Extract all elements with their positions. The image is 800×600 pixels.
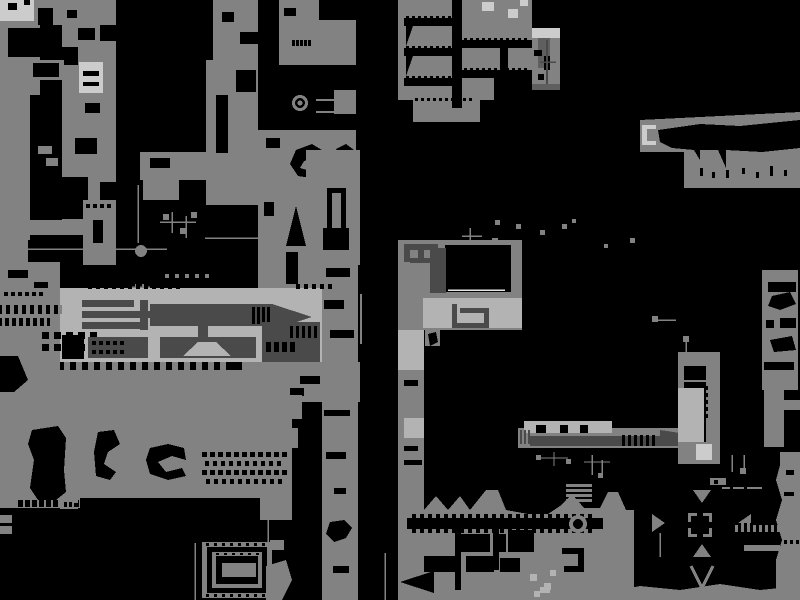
map-tick [18,292,22,296]
map-shape [764,362,794,370]
map-tick [106,341,110,345]
map-shape [286,252,298,284]
map-shape [445,245,511,292]
map-tick [304,284,308,289]
map-shape [140,152,206,180]
map-shape [326,268,350,277]
map-shape [333,566,349,573]
map-tick [476,68,479,71]
map-shape [564,566,584,572]
map-tick [16,406,24,410]
map-tick [104,284,108,289]
map-shape [93,220,103,243]
map-shape [460,534,490,552]
map-tick [464,68,467,71]
map-tick [237,461,241,466]
map-tick [26,305,30,314]
map-shape [404,418,424,438]
map-tick [420,514,424,518]
map-tick [206,543,209,546]
map-shape [163,214,169,220]
map-tick [245,461,249,466]
map-shape [540,587,550,593]
map-tick [433,98,436,101]
map-tick [25,292,29,296]
map-shape [82,300,134,307]
map-tick [113,341,117,345]
map-tick [762,523,765,533]
map-tick [564,529,568,533]
map-shape [82,322,140,329]
map-tick [436,529,440,533]
map-tick [218,470,223,475]
map-tick [768,523,771,533]
map-tick [16,399,24,403]
map-tick [484,514,488,518]
map-tick [258,470,263,475]
map-shape [688,513,691,522]
map-tick [240,553,243,555]
map-shape [580,425,588,433]
map-shape [703,534,712,537]
map-tick [261,461,265,466]
map-tick [168,284,172,289]
map-shape [410,258,438,263]
map-shape [683,336,689,342]
map-tick [39,500,44,507]
map-tick [452,514,456,518]
map-tick [100,204,104,208]
map-tick [106,350,110,354]
map-shape [323,228,349,250]
map-shape [780,400,800,410]
map-tick [50,305,54,314]
map-shape [784,170,787,176]
map-tick [282,452,287,457]
map-tick [451,98,454,101]
map-shape [404,380,418,386]
map-shape [270,540,284,550]
map-shape [482,2,494,11]
map-tick [246,594,249,597]
map-shape [562,224,567,229]
map-shape [566,489,592,492]
map-tick [266,342,271,352]
map-tick [202,470,207,475]
map-shape [324,300,344,309]
map-shape [0,515,12,523]
map-shape [700,168,703,176]
map-tick [246,479,250,484]
map-shape [756,172,759,178]
map-tick [460,514,464,518]
map-tick [500,514,504,518]
map-tick [482,38,485,41]
map-tick [92,341,96,345]
map-shape [784,492,794,496]
map-shape [714,480,718,484]
map-shape [222,12,234,22]
map-tick [406,76,409,79]
map-shape [562,548,584,554]
map-tick [518,68,521,71]
map-tick [76,362,82,370]
map-tick [470,38,473,41]
map-tick [704,386,708,390]
map-shape [334,90,356,114]
map-tick [34,305,38,314]
map-tick [445,98,448,101]
map-tick [226,470,231,475]
map-tick [304,40,307,46]
map-tick [230,479,234,484]
map-tick [42,344,49,351]
map-tick [784,540,787,544]
map-tick [210,470,215,475]
map-tick [54,344,61,351]
map-tick [282,342,287,352]
map-tick [214,543,217,546]
map-tick [257,307,260,324]
map-tick [120,284,124,289]
map-tick [436,46,439,49]
map-tick [266,452,271,457]
map-tick [30,318,33,326]
map-shape [520,0,528,6]
map-tick [406,46,409,49]
map-tick [704,393,708,397]
map-tick [468,514,472,518]
map-shape [652,316,658,322]
map-tick [214,594,217,597]
map-tick [500,68,503,71]
map-tick [290,326,293,338]
map-shape [88,337,148,358]
map-tick [520,430,522,444]
map-shape [30,220,62,235]
map-tick [468,529,472,533]
map-shape [642,141,656,145]
map-tick [100,362,106,370]
map-tick [476,38,479,41]
map-tick [418,76,421,79]
map-tick [308,326,311,338]
map-shape [202,542,272,547]
map-shape [404,48,452,56]
map-shape [550,570,556,576]
map-tick [524,68,527,71]
map-shape [240,32,258,44]
map-tick [252,307,255,324]
map-tick [750,523,753,533]
map-shape [327,188,332,228]
map-shape [742,168,745,174]
map-tick [277,461,281,466]
map-shape [634,490,774,588]
map-tick [196,362,202,370]
map-tick [210,452,215,457]
map-shape [8,28,40,57]
map-tick [172,362,178,370]
map-tick [628,435,631,446]
map-tick [152,284,156,289]
map-tick [9,318,12,326]
map-shape [202,542,207,598]
map-tick [512,38,515,41]
map-shape [536,425,546,433]
map-tick [796,540,799,544]
map-shape [493,520,499,570]
map-tick [208,362,214,370]
map-tick [202,452,207,457]
map-tick [300,40,303,46]
map-shape [688,534,697,537]
map-tick [518,38,521,41]
map-tick [221,461,225,466]
map-tick [92,350,96,354]
map-shape [0,240,28,262]
map-tick [292,40,295,46]
map-shape [573,519,583,529]
map-tick [296,40,299,46]
map-shape [64,502,67,507]
map-tick [222,594,225,597]
map-tick [128,284,132,289]
map-tick [302,326,305,338]
map-shape [327,188,346,193]
map-tick [524,430,526,444]
map-tick [442,46,445,49]
map-shape [0,526,12,534]
game-map-viewport [0,0,800,600]
map-shape [57,397,67,407]
map-shape [404,244,410,262]
map-shape [696,444,712,460]
map-tick [528,430,530,444]
map-shape [404,18,452,26]
map-tick [238,594,241,597]
map-tick [418,46,421,49]
map-tick [254,594,257,597]
map-tick [18,305,22,314]
map-tick [588,514,592,518]
map-shape [534,591,540,597]
map-tick [234,452,239,457]
map-shape [212,584,262,588]
map-tick [488,38,491,41]
map-tick [790,540,793,544]
map-tick [88,284,92,289]
map-shape [766,320,774,328]
map-shape [300,376,320,384]
map-shape [324,410,350,416]
map-tick [320,284,324,289]
map-tick [274,452,279,457]
map-tick [88,362,94,370]
map-tick [428,514,432,518]
map-shape [572,219,576,223]
map-tick [492,514,496,518]
map-shape [462,70,532,78]
map-tick [256,553,259,555]
map-shape [216,95,228,153]
map-tick [424,76,427,79]
map-tick [262,479,266,484]
map-tick [506,38,509,41]
map-tick [436,514,440,518]
map-shape [100,25,116,41]
map-shape [508,530,534,552]
map-tick [457,98,460,101]
map-tick [470,68,473,71]
map-tick [112,284,116,289]
map-shape [38,146,52,154]
map-tick [214,479,218,484]
map-shape [78,28,95,40]
map-shape [83,82,99,86]
map-tick [444,514,448,518]
map-shape [34,282,48,288]
map-shape [341,188,346,228]
map-shape [778,124,784,132]
map-tick [124,362,130,370]
map-shape [744,545,780,551]
map-tick [540,514,544,518]
map-shape [712,172,715,178]
map-tick [2,305,6,314]
map-tick [756,523,759,533]
map-tick [704,400,708,404]
map-tick [248,553,251,555]
map-shape [33,63,59,77]
map-shape [604,244,608,248]
map-tick [229,461,233,466]
map-tick [107,204,111,208]
map-shape [598,473,603,478]
map-shape [566,459,571,464]
map-shape [212,552,216,588]
map-shape [191,212,197,218]
map-tick [548,529,552,533]
map-tick [53,500,58,507]
map-tick [436,16,439,19]
map-shape [222,563,256,577]
map-tick [16,420,24,424]
map-tick [444,529,448,533]
map-tick [205,461,209,466]
map-shape [79,62,103,93]
map-tick [296,326,299,338]
map-tick [238,479,242,484]
map-shape [630,238,635,243]
map-tick [37,318,40,326]
map-shape [69,502,72,507]
map-tick [32,292,36,296]
map-shape [330,330,354,338]
map-tick [99,350,103,354]
map-tick [54,332,61,339]
map-shape [62,335,84,359]
map-shape [495,220,500,225]
map-tick [269,461,273,466]
map-tick [296,284,300,289]
map-tick [213,461,217,466]
map-tick [448,76,451,79]
map-tick [516,514,520,518]
map-shape [566,494,592,497]
map-tick [253,461,257,466]
map-shape [534,50,542,56]
map-shape [452,0,462,108]
map-tick [160,284,164,289]
map-tick [224,553,227,555]
map-shape [150,158,170,168]
map-tick [556,529,560,533]
map-shape [279,20,356,65]
map-tick [738,523,741,533]
map-tick [46,500,51,507]
map-shape [684,366,706,380]
map-tick [506,68,509,71]
map-tick [282,470,287,475]
map-tick [160,362,166,370]
map-tick [439,98,442,101]
map-tick [524,514,528,518]
map-shape [258,552,262,588]
map-tick [250,452,255,457]
map-tick [314,326,317,338]
map-tick [232,553,235,555]
map-shape [24,0,30,5]
map-tick [176,284,180,289]
map-tick [254,543,257,546]
map-tick [442,16,445,19]
map-tick [532,514,536,518]
map-tick [184,362,190,370]
map-shape [536,455,541,460]
map-shape [424,556,458,572]
map-tick [2,318,5,326]
map-shape [678,388,704,442]
map-shape [734,136,738,144]
map-shape [744,486,747,490]
map-tick [10,305,14,314]
map-tick [93,204,97,208]
map-shape [326,452,346,459]
map-shape [404,460,422,465]
map-shape [8,3,17,10]
map-tick [136,284,140,289]
map-shape [726,170,729,178]
map-tick [16,427,24,431]
map-shape [0,95,30,240]
map-tick [238,543,241,546]
map-tick [463,98,466,101]
map-shape [62,47,78,65]
map-tick [120,341,124,345]
map-tick [86,204,90,208]
map-tick [234,470,239,475]
map-shape [538,74,544,80]
map-tick [448,46,451,49]
map-shape [466,556,494,572]
map-shape [764,390,784,447]
map-tick [262,307,265,324]
map-tick [564,514,568,518]
map-shape [709,513,712,522]
map-tick [312,284,316,289]
map-tick [246,543,249,546]
